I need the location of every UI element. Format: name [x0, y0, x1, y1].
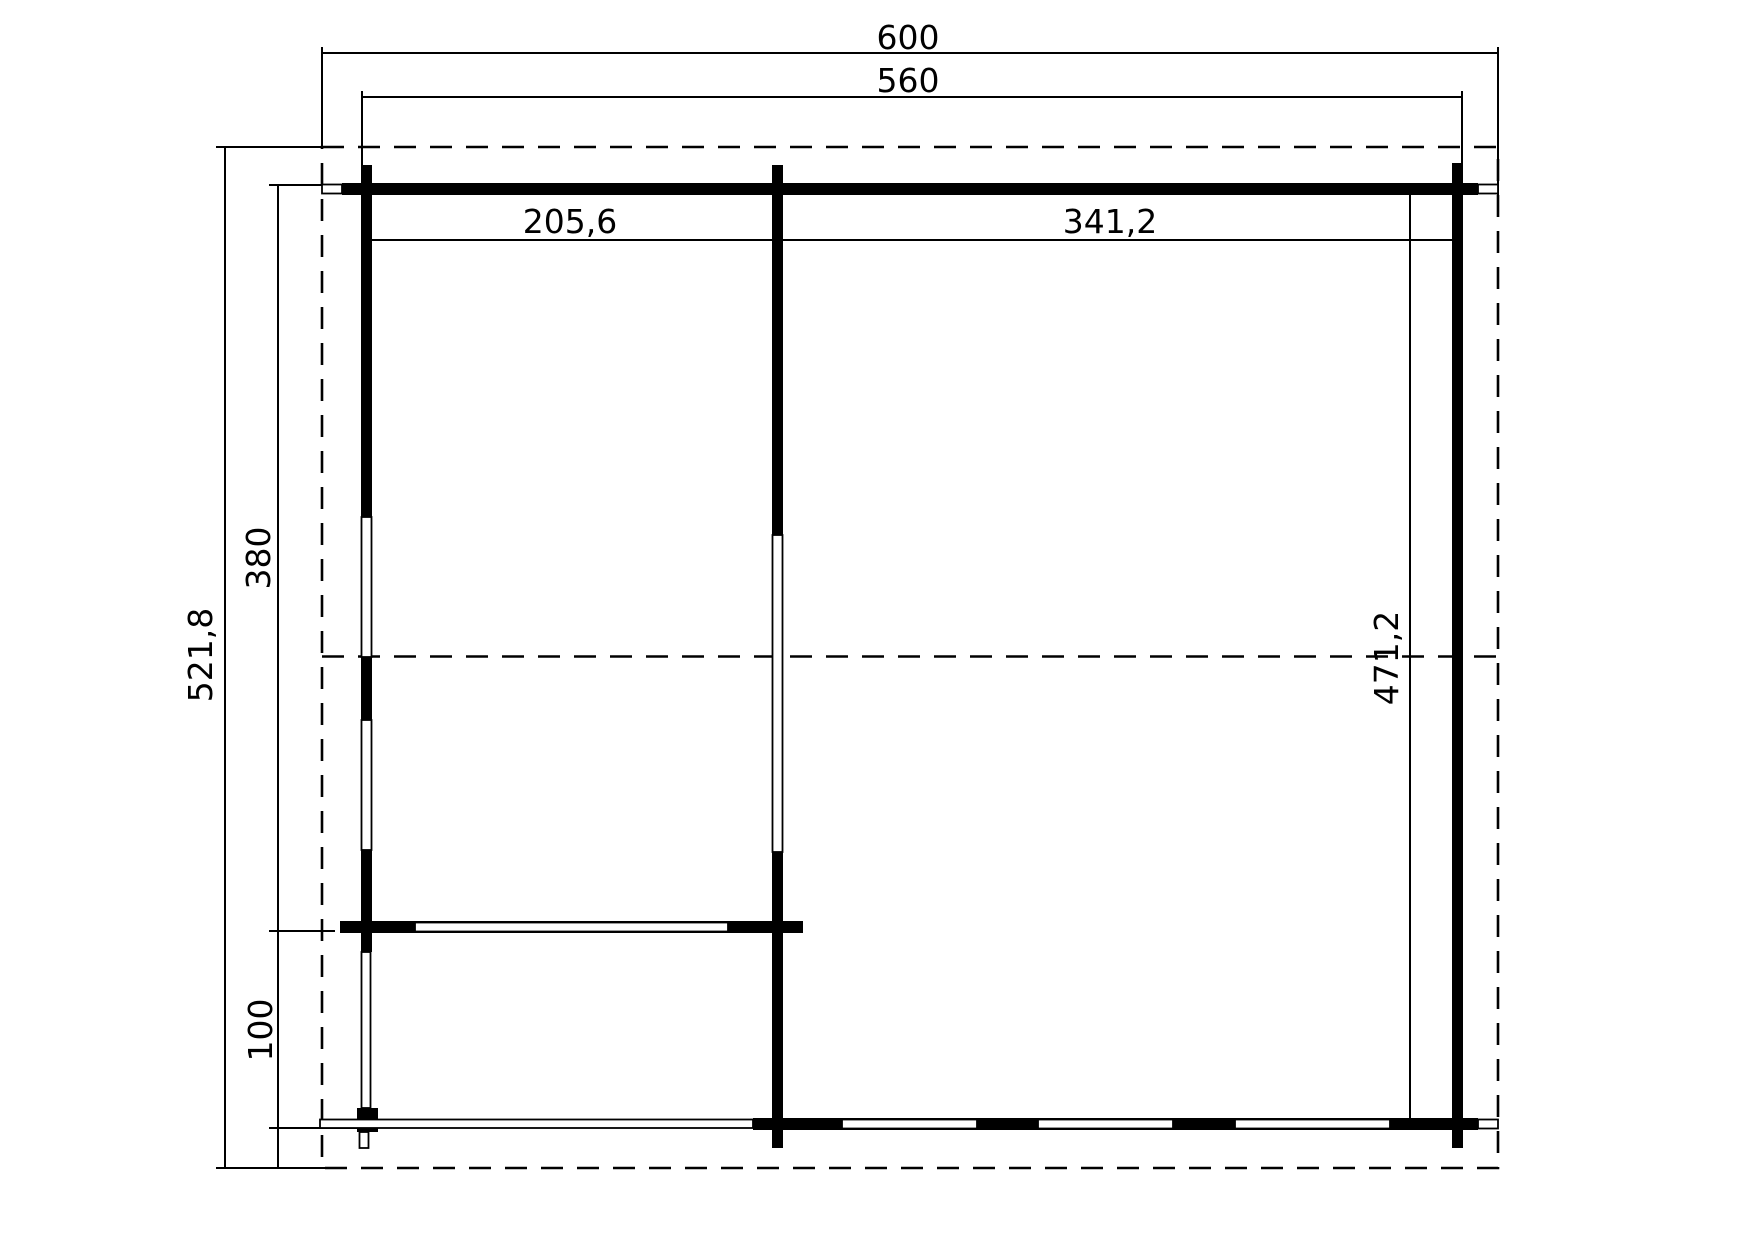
left-wall-lower	[361, 850, 372, 952]
porch-post-stub	[360, 1132, 369, 1148]
top-wall-left-log-end	[322, 185, 342, 194]
label-overall-width: 600	[877, 18, 940, 57]
floor-plan-page: 600 560 205,6 341,2 521,8 380 100 471,2	[0, 0, 1754, 1240]
label-building-width: 560	[877, 61, 940, 100]
porch-front-edge	[320, 1120, 753, 1129]
bottom-wall-window-1	[842, 1120, 977, 1129]
interior-wall-vertical-lower	[772, 852, 783, 1148]
left-wall-window-2	[362, 720, 372, 850]
left-wall-upper	[361, 165, 372, 517]
top-wall	[342, 183, 1478, 195]
top-wall-right-log-end	[1478, 185, 1498, 194]
label-right-room-depth: 471,2	[1367, 611, 1406, 705]
floor-plan-canvas: 600 560 205,6 341,2 521,8 380 100 471,2	[0, 0, 1754, 1240]
left-wall-window-1	[362, 517, 372, 657]
label-right-room-width: 341,2	[1063, 202, 1157, 241]
right-wall	[1452, 163, 1463, 1148]
porch-side-railing	[362, 952, 371, 1108]
label-main-room-depth: 380	[239, 527, 278, 590]
interior-wall-window	[415, 923, 728, 932]
interior-door-opening	[773, 535, 783, 852]
label-overall-depth: 521,8	[181, 608, 220, 702]
interior-wall-vertical-upper	[772, 165, 783, 535]
label-left-room-width: 205,6	[523, 202, 617, 241]
label-porch-depth: 100	[241, 999, 280, 1062]
bottom-wall-window-2	[1038, 1120, 1173, 1129]
bottom-wall-window-3	[1235, 1120, 1390, 1129]
left-wall-middle	[361, 657, 372, 720]
bottom-wall-right-log-end	[1478, 1120, 1498, 1129]
